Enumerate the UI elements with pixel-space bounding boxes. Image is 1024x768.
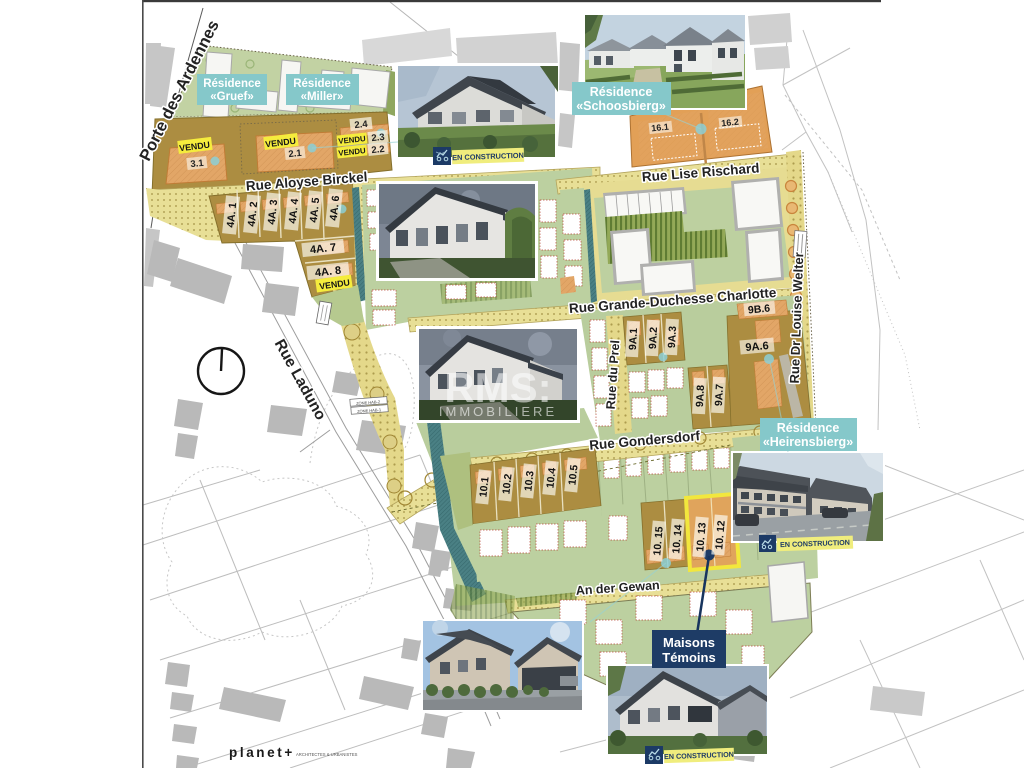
svg-text:9A.8: 9A.8	[694, 384, 707, 407]
svg-text:2.3: 2.3	[371, 132, 385, 144]
svg-text:10.4: 10.4	[544, 467, 558, 489]
svg-text:9A.7: 9A.7	[713, 383, 726, 406]
svg-text:Maisons: Maisons	[663, 635, 715, 650]
svg-text:2.2: 2.2	[371, 144, 385, 156]
svg-text:Résidence: Résidence	[590, 85, 653, 99]
svg-text:9A.3: 9A.3	[666, 325, 679, 348]
svg-text:10.2: 10.2	[500, 473, 514, 495]
svg-text:IMMOBILIERE: IMMOBILIERE	[439, 404, 557, 419]
svg-text:2.4: 2.4	[354, 119, 369, 131]
svg-text:ARCHITECTES & URBANISTES: ARCHITECTES & URBANISTES	[296, 752, 358, 757]
svg-text:«Schoosbierg»: «Schoosbierg»	[576, 99, 666, 113]
svg-text:10.5: 10.5	[566, 464, 580, 486]
svg-text:10. 12: 10. 12	[713, 520, 728, 550]
svg-text:16.1: 16.1	[651, 122, 669, 134]
svg-text:16.2: 16.2	[721, 117, 739, 129]
svg-text:10. 13: 10. 13	[694, 522, 709, 552]
svg-text:Témoins: Témoins	[662, 650, 715, 665]
svg-text:10. 14: 10. 14	[670, 524, 685, 554]
svg-text:Résidence: Résidence	[203, 78, 261, 90]
svg-text:3.1: 3.1	[190, 158, 205, 170]
svg-text:10.1: 10.1	[477, 476, 491, 498]
svg-text:«Gruef»: «Gruef»	[210, 91, 253, 103]
svg-text:2.1: 2.1	[288, 148, 303, 160]
svg-text:«Miller»: «Miller»	[301, 91, 344, 103]
svg-text:10. 15: 10. 15	[651, 526, 666, 556]
svg-text:9A.1: 9A.1	[627, 327, 640, 350]
svg-text:9B.6: 9B.6	[747, 303, 770, 317]
svg-text:«Heirensbierg»: «Heirensbierg»	[763, 435, 853, 449]
svg-text:9A.6: 9A.6	[745, 340, 769, 354]
svg-text:10.3: 10.3	[522, 470, 536, 492]
svg-text:planet+: planet+	[229, 745, 295, 760]
svg-text:Résidence: Résidence	[293, 78, 351, 90]
svg-text:Résidence: Résidence	[777, 421, 840, 435]
svg-text:9A.2: 9A.2	[647, 326, 660, 349]
